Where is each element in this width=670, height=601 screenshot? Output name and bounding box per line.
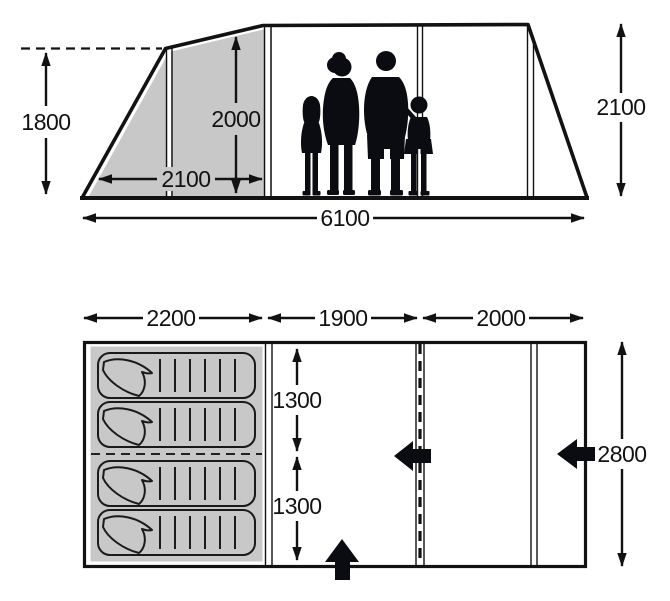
side-elevation-view: 1800 2000 2100 6100 2100 bbox=[21, 24, 646, 231]
rear-height-label: 2100 bbox=[596, 94, 645, 120]
berth-width-top-label: 1300 bbox=[272, 387, 321, 413]
girl-silhouette-icon bbox=[301, 96, 322, 196]
family-silhouette-icon bbox=[301, 51, 433, 196]
berth-width-bottom-label: 1300 bbox=[272, 493, 321, 519]
front-height-label: 1800 bbox=[21, 109, 70, 135]
man-silhouette-icon bbox=[364, 51, 408, 196]
floor-plan-view: 2200 1900 2000 1300 1300 2800 bbox=[84, 305, 647, 580]
total-width-label: 2800 bbox=[597, 441, 646, 467]
bedroom-length-label: 2200 bbox=[146, 305, 195, 331]
tent-dimensions-figure: 1800 2000 2100 6100 2100 bbox=[0, 0, 670, 601]
sleeping-area bbox=[91, 347, 263, 562]
porch-length-label: 2000 bbox=[476, 305, 525, 331]
woman-silhouette-icon bbox=[323, 52, 359, 195]
living-length-label: 1900 bbox=[318, 305, 367, 331]
tent-dimensions-diagram: 1800 2000 2100 6100 2100 bbox=[0, 0, 670, 601]
bedroom-height-label: 2000 bbox=[211, 106, 260, 132]
front-depth-label: 2100 bbox=[161, 166, 210, 192]
total-length-label: 6100 bbox=[320, 205, 369, 231]
